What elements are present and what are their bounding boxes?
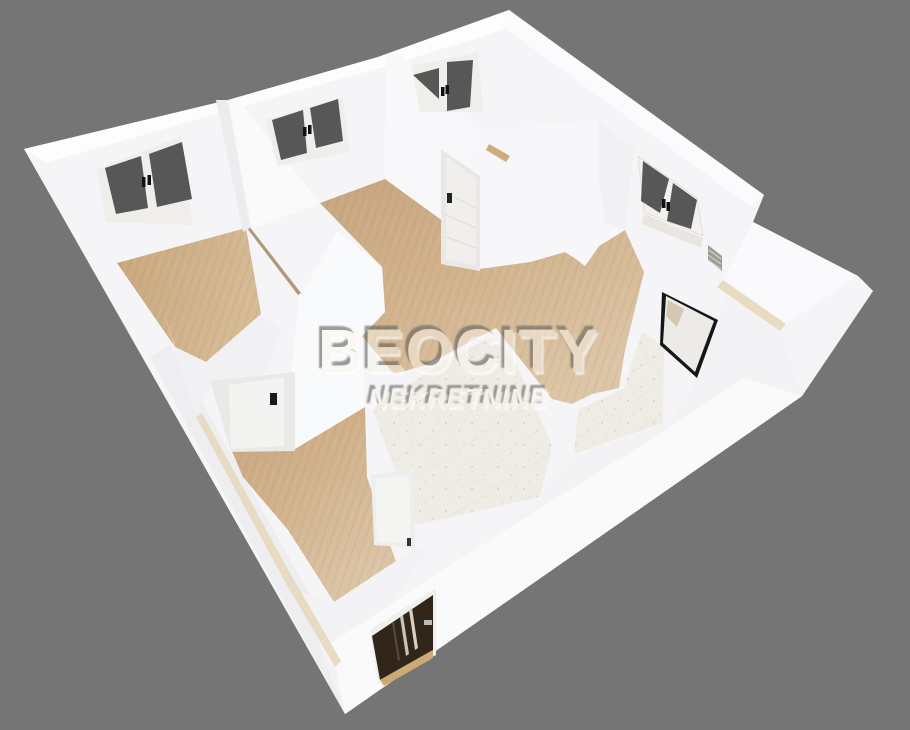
svg-text:NEKRETNINE: NEKRETNINE: [369, 383, 548, 413]
svg-text:BEOCITY: BEOCITY: [318, 317, 600, 385]
